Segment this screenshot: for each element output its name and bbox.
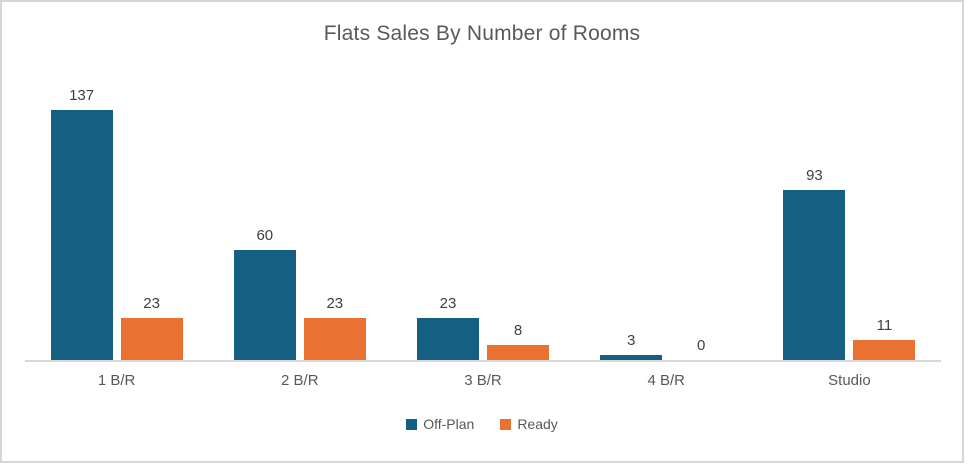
x-axis-label-1-b-r: 1 B/R	[25, 372, 208, 389]
bar-off-plan-2-b-r	[234, 250, 296, 360]
data-label-off-plan-1-b-r: 137	[69, 88, 94, 103]
bar-group-1-b-r: 13723	[25, 68, 208, 360]
bar-wrap-ready-3-b-r: 8	[487, 68, 549, 360]
data-label-off-plan-4-b-r: 3	[627, 333, 635, 348]
bar-wrap-off-plan-3-b-r: 23	[417, 68, 479, 360]
bar-groups: 137236023238309311	[25, 68, 941, 360]
data-label-ready-studio: 11	[877, 318, 893, 333]
legend: Off-PlanReady	[2, 416, 962, 432]
legend-item-ready: Ready	[500, 416, 557, 432]
data-label-off-plan-2-b-r: 60	[256, 228, 273, 243]
data-label-ready-3-b-r: 8	[514, 323, 522, 338]
bar-ready-2-b-r	[304, 318, 366, 360]
chart-container: Flats Sales By Number of Rooms 137236023…	[0, 0, 964, 463]
data-label-off-plan-studio: 93	[806, 168, 823, 183]
bar-off-plan-1-b-r	[51, 110, 113, 360]
x-axis-label-3-b-r: 3 B/R	[391, 372, 574, 389]
bar-wrap-ready-4-b-r: 0	[670, 68, 732, 360]
bar-ready-studio	[853, 340, 915, 360]
data-label-off-plan-3-b-r: 23	[440, 296, 457, 311]
chart-title: Flats Sales By Number of Rooms	[2, 22, 962, 46]
bar-wrap-ready-2-b-r: 23	[304, 68, 366, 360]
plot-area: 137236023238309311	[25, 68, 941, 360]
bar-group-studio: 9311	[758, 68, 941, 360]
bar-off-plan-4-b-r	[600, 355, 662, 360]
legend-swatch-ready	[500, 419, 511, 430]
bar-wrap-off-plan-studio: 93	[783, 68, 845, 360]
legend-label-ready: Ready	[517, 416, 557, 432]
legend-label-off-plan: Off-Plan	[423, 416, 474, 432]
bar-ready-3-b-r	[487, 345, 549, 360]
bar-off-plan-3-b-r	[417, 318, 479, 360]
bar-off-plan-studio	[783, 190, 845, 360]
bar-group-3-b-r: 238	[391, 68, 574, 360]
bar-wrap-ready-studio: 11	[853, 68, 915, 360]
x-axis-label-studio: Studio	[758, 372, 941, 389]
data-label-ready-1-b-r: 23	[143, 296, 160, 311]
x-axis-label-2-b-r: 2 B/R	[208, 372, 391, 389]
bar-wrap-off-plan-2-b-r: 60	[234, 68, 296, 360]
x-axis-label-4-b-r: 4 B/R	[575, 372, 758, 389]
x-axis-labels: 1 B/R2 B/R3 B/R4 B/RStudio	[25, 372, 941, 389]
data-label-ready-4-b-r: 0	[697, 338, 705, 353]
bar-group-4-b-r: 30	[575, 68, 758, 360]
legend-swatch-off-plan	[406, 419, 417, 430]
bar-wrap-off-plan-4-b-r: 3	[600, 68, 662, 360]
bar-wrap-ready-1-b-r: 23	[121, 68, 183, 360]
bar-ready-1-b-r	[121, 318, 183, 360]
legend-item-off-plan: Off-Plan	[406, 416, 474, 432]
x-axis-line	[25, 360, 941, 362]
bar-group-2-b-r: 6023	[208, 68, 391, 360]
data-label-ready-2-b-r: 23	[326, 296, 343, 311]
bar-wrap-off-plan-1-b-r: 137	[51, 68, 113, 360]
